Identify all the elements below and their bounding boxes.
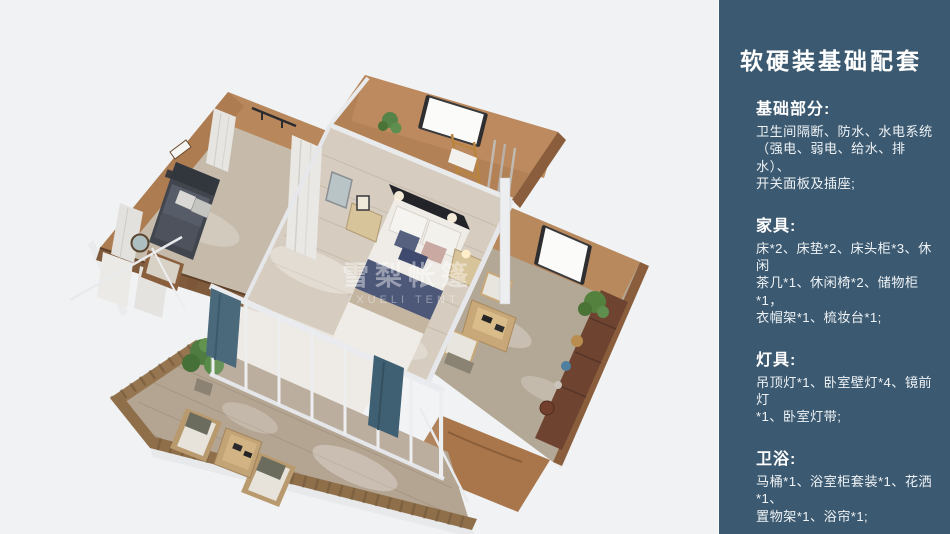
- section-body: 吊顶灯*1、卧室壁灯*4、镜前灯 *1、卧室灯带;: [756, 374, 937, 426]
- spec-panel: 软硬装基础配套 基础部分: 卫生间隔断、防水、水电系统 （强电、弱电、给水、排水…: [718, 0, 950, 534]
- section-body: 马桶*1、浴室柜套装*1、花洒*1、 置物架*1、浴帘*1;: [756, 473, 937, 525]
- section-heading: 家具:: [756, 212, 937, 236]
- spec-section-basics: 基础部分: 卫生间隔断、防水、水电系统 （强电、弱电、给水、排水）、 开关面板及…: [756, 95, 937, 193]
- spec-section-lighting: 灯具: 吊顶灯*1、卧室壁灯*4、镜前灯 *1、卧室灯带;: [756, 346, 937, 426]
- section-body: 卫生间隔断、防水、水电系统 （强电、弱电、给水、排水）、 开关面板及插座;: [756, 123, 937, 193]
- page: 雪梨帐篷 XUELI TENT 软硬装基础配套 基础部分: 卫生间隔断、防水、水…: [0, 0, 950, 534]
- section-heading: 灯具:: [756, 346, 937, 370]
- floor-plan-render: 雪梨帐篷 XUELI TENT: [0, 0, 719, 534]
- section-heading: 卫浴:: [756, 445, 937, 469]
- panel-title: 软硬装基础配套: [740, 42, 937, 76]
- watermark: 雪梨帐篷 XUELI TENT: [342, 260, 474, 306]
- section-heading: 基础部分:: [756, 95, 937, 119]
- section-body: 床*2、床垫*2、床头柜*3、休闲 茶几*1、休闲椅*2、储物柜*1， 衣帽架*…: [756, 240, 937, 327]
- watermark-cn: 雪梨帐篷: [342, 260, 474, 291]
- spec-sections: 基础部分: 卫生间隔断、防水、水电系统 （强电、弱电、给水、排水）、 开关面板及…: [756, 95, 937, 534]
- watermark-en: XUELI TENT: [356, 294, 459, 306]
- spec-section-bath: 卫浴: 马桶*1、浴室柜套装*1、花洒*1、 置物架*1、浴帘*1;: [756, 445, 937, 525]
- spec-section-furniture: 家具: 床*2、床垫*2、床头柜*3、休闲 茶几*1、休闲椅*2、储物柜*1， …: [756, 212, 937, 327]
